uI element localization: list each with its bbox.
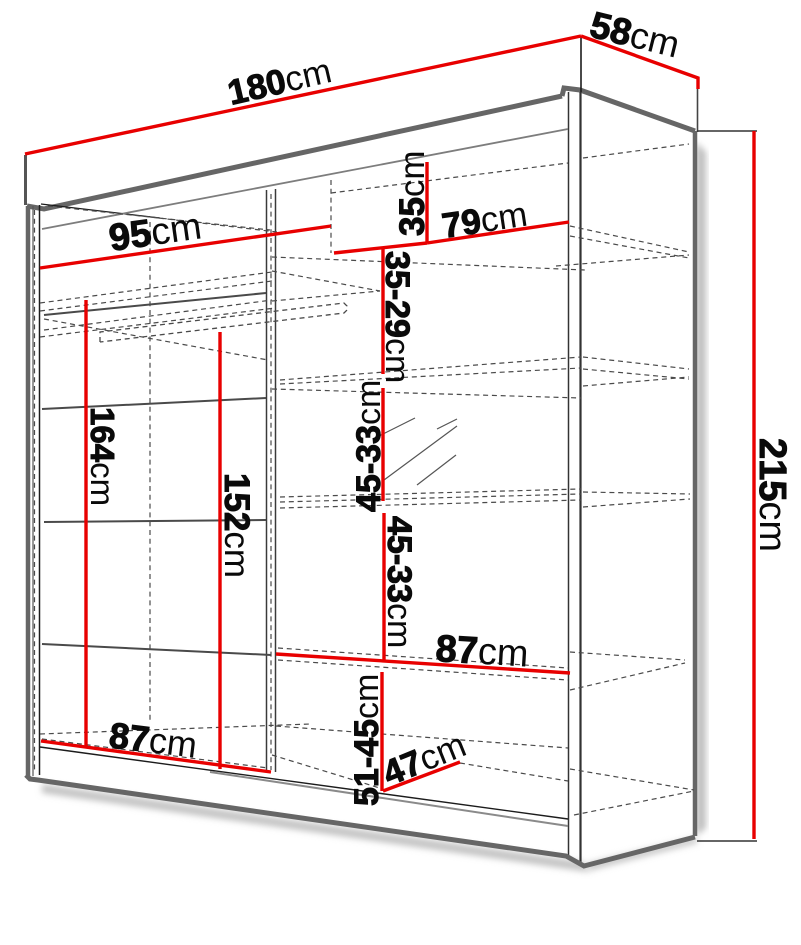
svg-text:87cm: 87cm bbox=[434, 628, 529, 676]
svg-text:45-33cm: 45-33cm bbox=[350, 380, 388, 512]
svg-text:51-45cm: 51-45cm bbox=[348, 674, 386, 806]
svg-text:35cm: 35cm bbox=[393, 150, 432, 236]
svg-text:45-33cm: 45-33cm bbox=[380, 516, 418, 648]
svg-text:215cm: 215cm bbox=[751, 438, 793, 552]
svg-text:35-29cm: 35-29cm bbox=[378, 251, 416, 383]
svg-text:152cm: 152cm bbox=[217, 473, 256, 578]
svg-text:164cm: 164cm bbox=[84, 407, 121, 506]
